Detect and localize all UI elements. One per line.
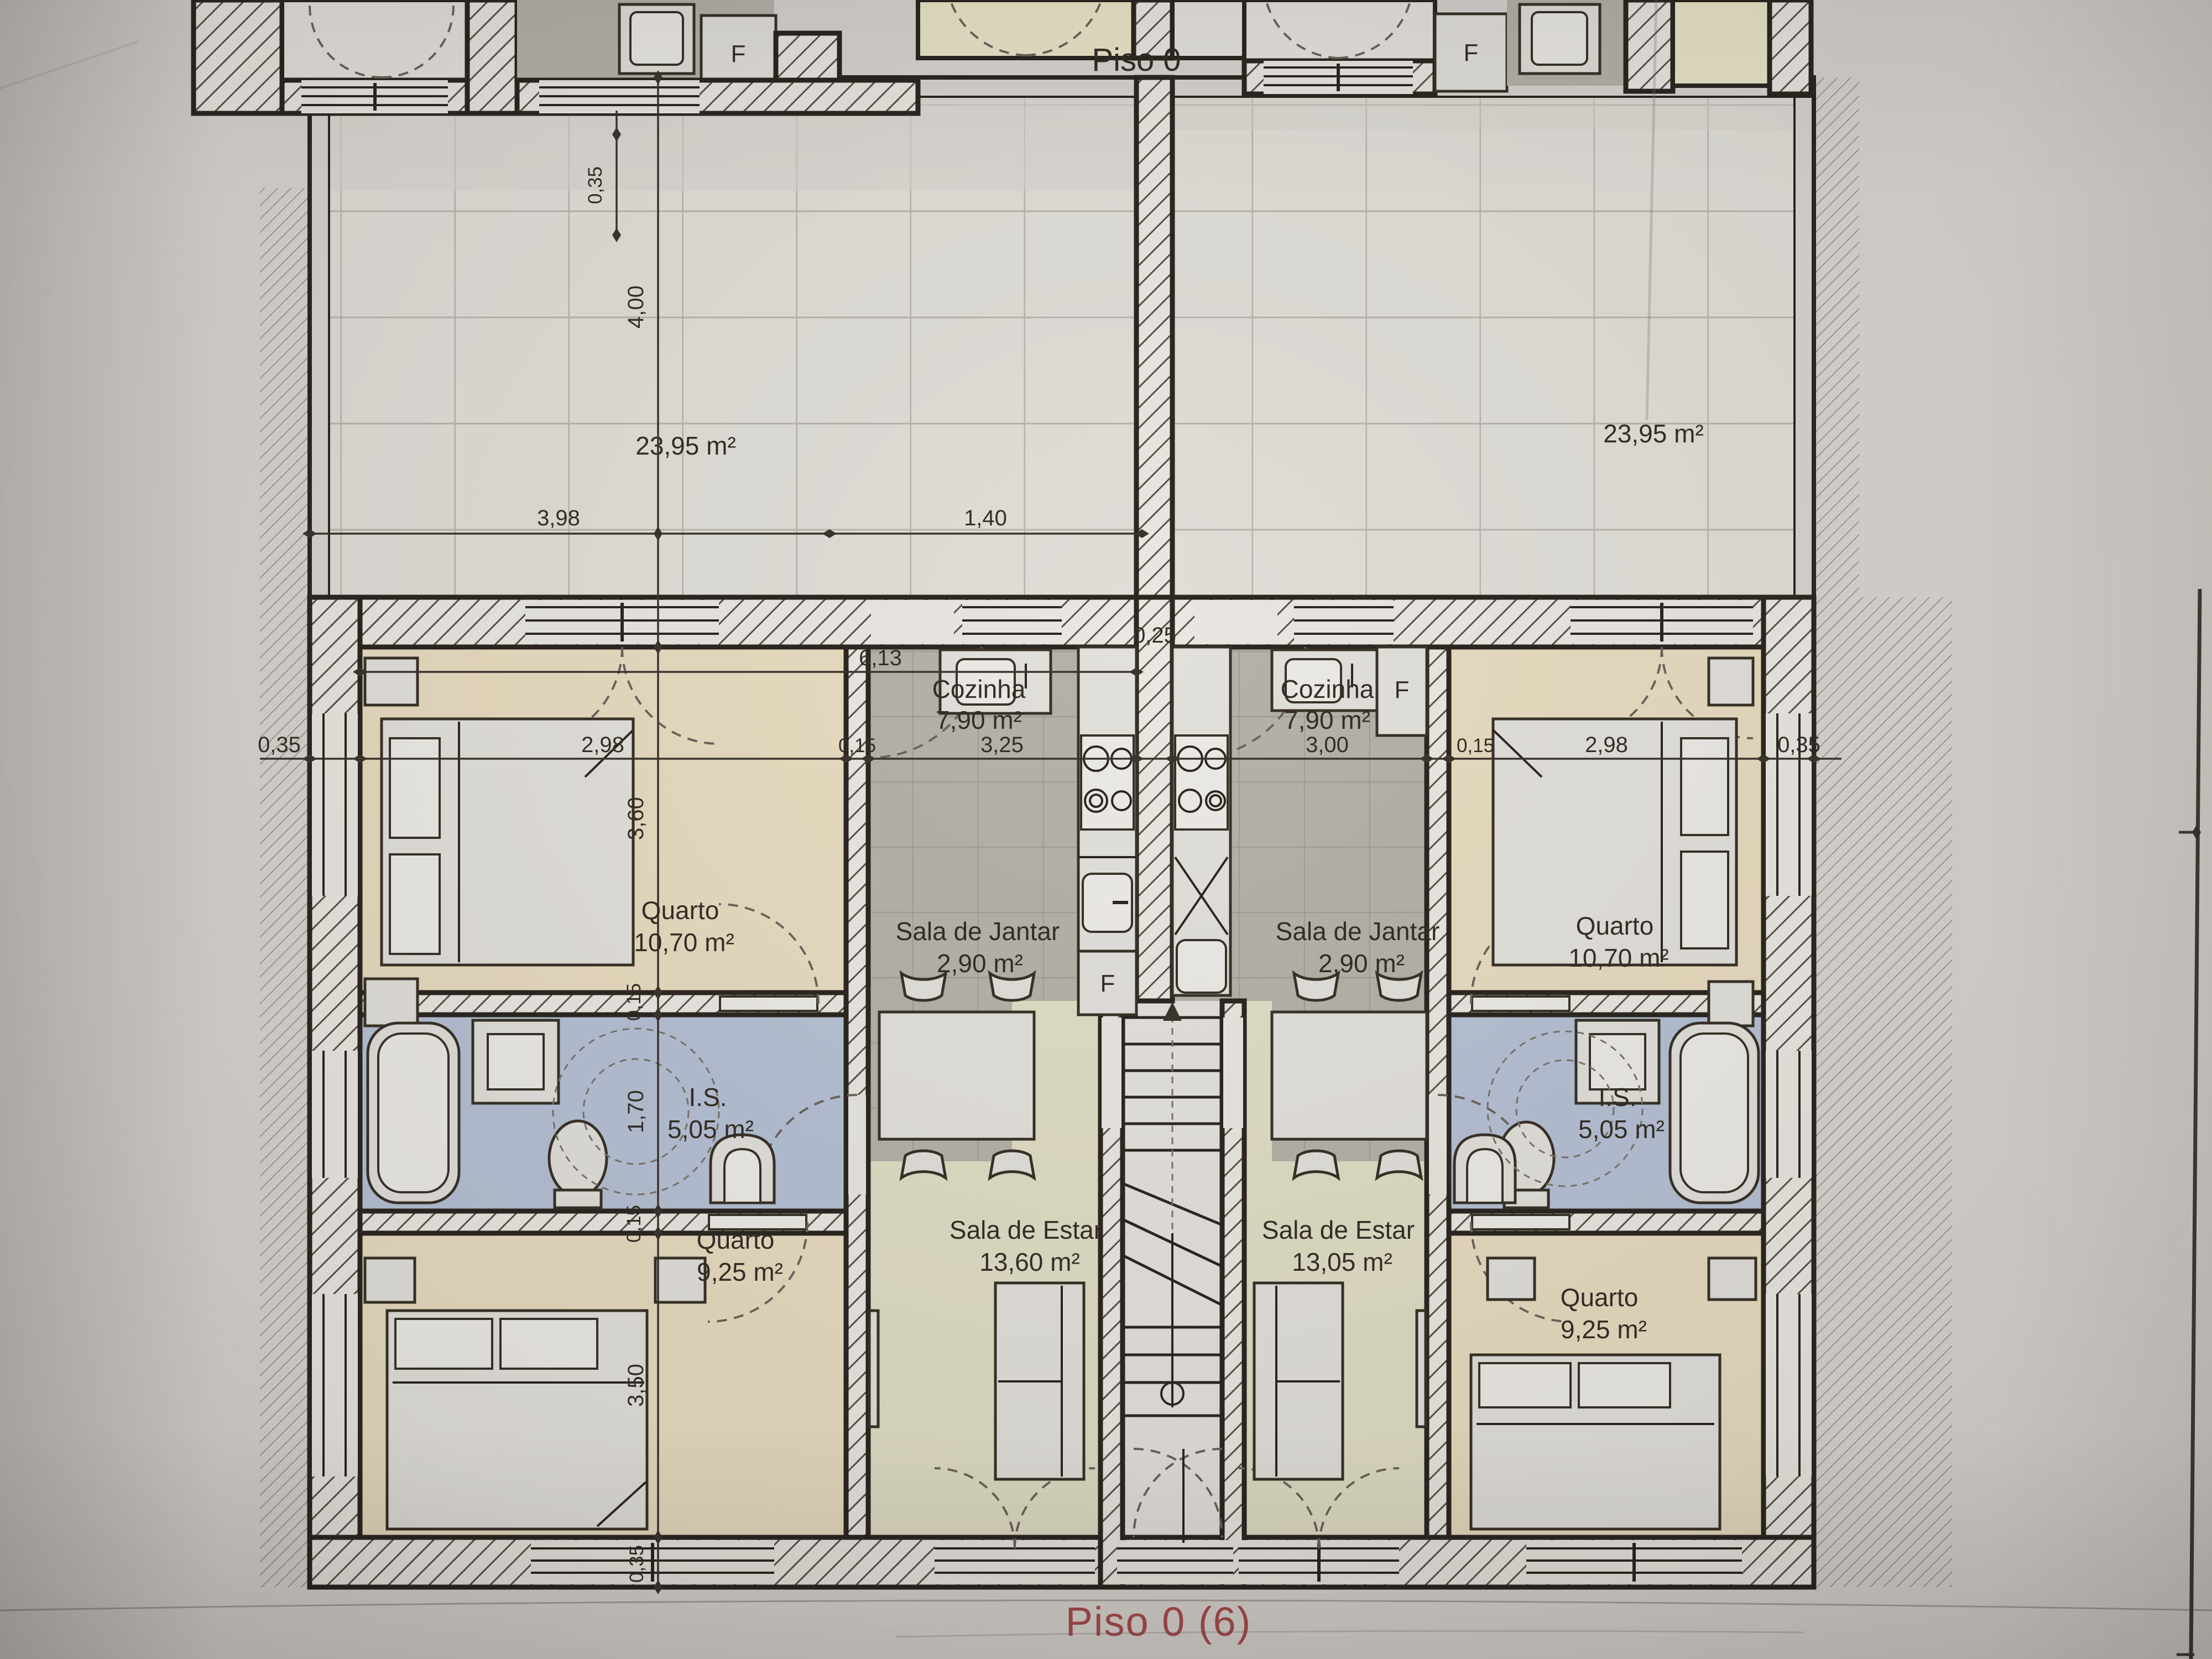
- floor-plan-drawing: 23,95 m² 23,95 m²: [0, 0, 2212, 1659]
- quarto2-right-area: 9,25 m²: [1561, 1315, 1647, 1344]
- quarto1-left-area: 10,70 m²: [634, 928, 734, 957]
- dining-table-right: [1272, 1012, 1427, 1139]
- upper-fridge-right-label: F: [1464, 39, 1479, 66]
- sala-jantar-right-area: 2,90 m²: [1318, 949, 1405, 978]
- toilet-left: [549, 1121, 607, 1196]
- dim-terrace-door: 1,40: [964, 506, 1007, 530]
- adjacent-sheet-edge: [2177, 589, 2201, 1659]
- fridge-right-label: F: [1395, 676, 1410, 703]
- nightstand: [365, 1258, 415, 1302]
- dim-cozinha-right: 3,00: [1306, 733, 1349, 757]
- quarto2-right-name: Quarto: [1561, 1283, 1639, 1312]
- floor-plan-photo: 23,95 m² 23,95 m²: [0, 0, 2212, 1659]
- is-left-name: I.S.: [688, 1083, 727, 1112]
- sala-jantar-left-name: Sala de Jantar: [896, 917, 1060, 946]
- nightstand: [1709, 982, 1753, 1026]
- wall-inner-right: [1427, 647, 1449, 1537]
- dim-terrace-depth: 4,00: [624, 285, 648, 328]
- pillow: [1479, 1363, 1571, 1407]
- wall-central: [1136, 597, 1172, 1001]
- cozinha-right-area: 7,90 m²: [1284, 706, 1370, 734]
- dim-wall-central: 0,25: [1133, 623, 1176, 648]
- quarto2-left-area: 9,25 m²: [697, 1258, 783, 1286]
- pillow: [1579, 1363, 1670, 1407]
- dim-quarto1-left: 2,98: [581, 733, 624, 757]
- pillow: [390, 738, 440, 838]
- nightstand: [1709, 1258, 1756, 1300]
- dim-upper-wall: 0,35: [585, 166, 606, 204]
- terrace-right-floor: [1172, 97, 1794, 597]
- terrace-right-area: 23,95 m²: [1603, 419, 1704, 448]
- plan-footer: Piso 0 (6): [1066, 1599, 1252, 1645]
- terraces: 23,95 m² 23,95 m²: [310, 77, 1814, 597]
- sala-estar-right-area: 13,05 m²: [1292, 1248, 1392, 1276]
- tv-right: [1417, 1311, 1426, 1427]
- nightstand: [1709, 658, 1753, 705]
- quarto1-right-name: Quarto: [1576, 911, 1654, 940]
- dim-quarto1-height: 3,60: [624, 797, 648, 840]
- quarto2-left-name: Quarto: [697, 1225, 775, 1254]
- is-left-area: 5,05 m²: [667, 1115, 754, 1144]
- dim-wall-bottom: 0,35: [626, 1545, 648, 1583]
- quarto1-left-name: Quarto: [641, 896, 719, 925]
- dim-quarto2-height: 3,50: [624, 1364, 648, 1407]
- pillow: [395, 1319, 492, 1369]
- cozinha-right-name: Cozinha: [1281, 675, 1374, 703]
- dim-is-wall-top: 0,15: [623, 983, 645, 1021]
- dim-wall-outer-left: 0,35: [258, 733, 301, 757]
- dim-wall-inner-left: 0,15: [838, 735, 876, 757]
- sala-estar-right-name: Sala de Estar: [1262, 1215, 1415, 1244]
- dining-table-left: [879, 1012, 1034, 1139]
- dim-quarto1-right: 2,98: [1585, 733, 1628, 757]
- sala-jantar-left-area: 2,90 m²: [937, 949, 1023, 978]
- dim-is-height: 1,70: [624, 1090, 648, 1133]
- pillow: [390, 854, 440, 954]
- quarto1-right-area: 10,70 m²: [1568, 943, 1669, 972]
- upper-fridge-left-label: F: [731, 40, 746, 67]
- dim-wall-inner-right: 0,15: [1457, 735, 1494, 757]
- pillow: [1681, 852, 1728, 948]
- is-right-name: I.S.: [1598, 1083, 1636, 1112]
- nightstand: [1488, 1258, 1535, 1300]
- nightstand: [365, 979, 418, 1026]
- cozinha-left-area: 7,90 m²: [936, 706, 1022, 734]
- dim-wall-outer-right: 0,35: [1777, 733, 1820, 757]
- terrace-divider-wall: [1136, 77, 1172, 597]
- plan-title: Piso 0: [1092, 42, 1181, 78]
- terrace-left-area: 23,95 m²: [635, 431, 736, 460]
- dim-apt-total: 6,13: [859, 646, 902, 670]
- dim-cozinha-left: 3,25: [980, 733, 1024, 757]
- tv-left: [869, 1311, 878, 1427]
- pillow: [500, 1319, 597, 1369]
- oven-right: [1177, 940, 1226, 993]
- pillow: [1681, 738, 1728, 835]
- dim-terrace-width: 3,98: [537, 506, 580, 530]
- dim-is-wall-bottom: 0,15: [623, 1205, 645, 1243]
- sala-jantar-right-name: Sala de Jantar: [1276, 917, 1440, 946]
- wall-inner-left: [846, 647, 868, 1537]
- cozinha-left-name: Cozinha: [932, 675, 1026, 703]
- sala-estar-left-area: 13,60 m²: [979, 1248, 1080, 1276]
- is-right-area: 5,05 m²: [1578, 1115, 1665, 1144]
- sala-estar-left-name: Sala de Estar: [950, 1215, 1102, 1244]
- fridge-left-label: F: [1100, 970, 1115, 997]
- nightstand: [365, 658, 418, 705]
